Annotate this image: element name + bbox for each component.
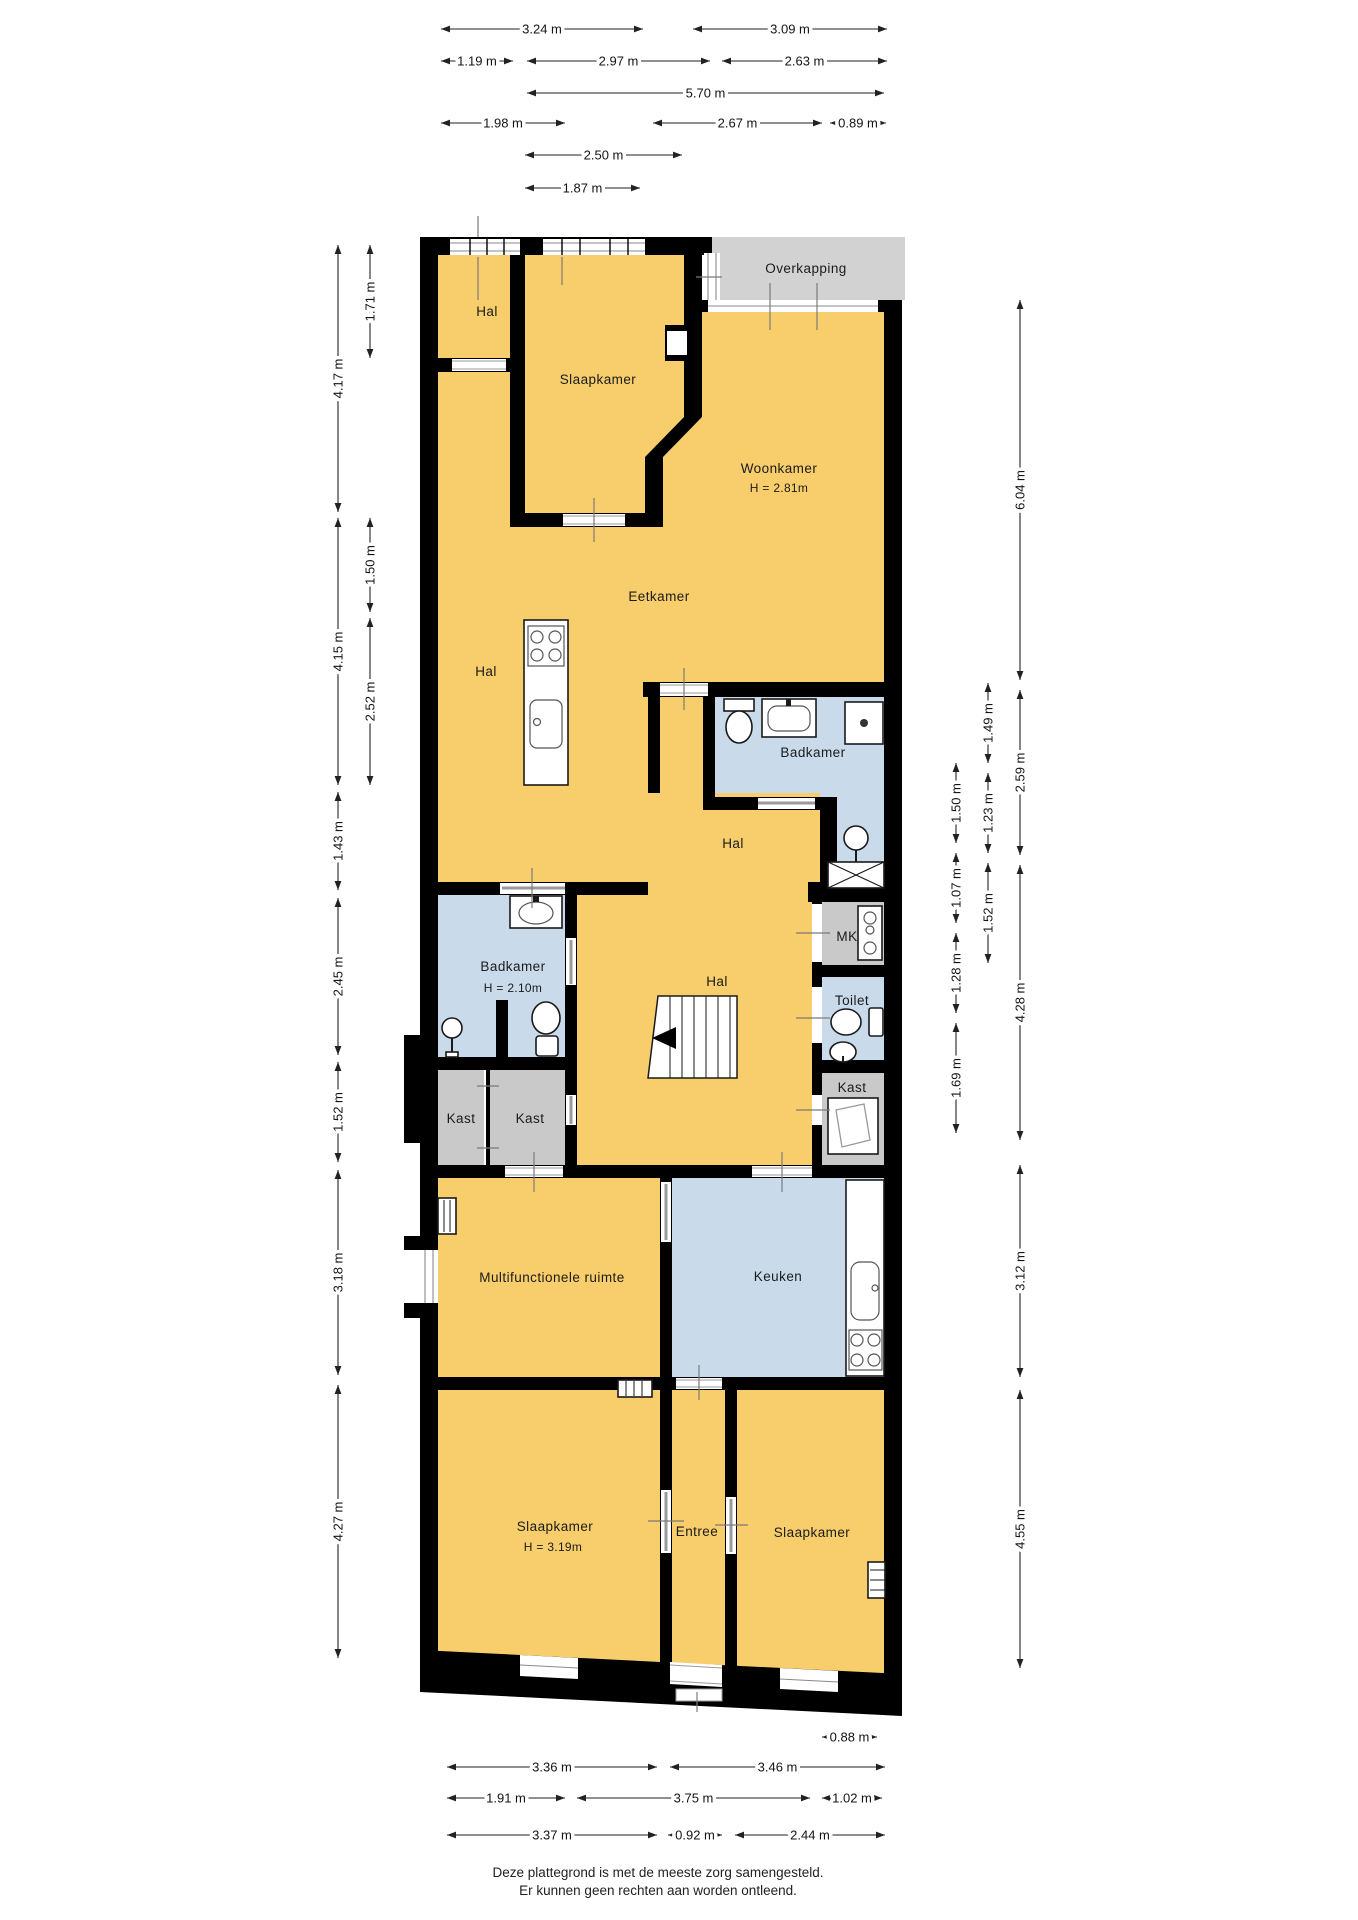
dimension: 1.07 m — [949, 853, 964, 923]
dimension-label: 3.36 m — [532, 1760, 572, 1775]
dimension-label: 3.75 m — [674, 1791, 714, 1806]
label-hal-mid-left: Hal — [475, 664, 497, 679]
footer: Deze plattegrond is met de meeste zorg s… — [493, 1865, 824, 1898]
kitchenette-counter — [524, 620, 568, 785]
dimension: 1.23 m — [981, 773, 996, 853]
radiator-slaapkamer-links — [618, 1380, 652, 1397]
dimension: 2.50 m — [525, 148, 682, 163]
dimension: 2.63 m — [722, 54, 887, 69]
dimension: 2.45 m — [331, 898, 346, 1055]
dimension: 4.27 m — [331, 1385, 346, 1658]
label-eetkamer: Eetkamer — [628, 589, 689, 604]
dimension: 1.28 m — [949, 933, 964, 1013]
dimension-label: 3.18 m — [331, 1253, 346, 1293]
dimension-label: 0.89 m — [838, 116, 878, 131]
dimension: 3.36 m — [447, 1760, 657, 1775]
dimension-label: 3.46 m — [758, 1760, 798, 1775]
dimension-label: 1.28 m — [949, 953, 964, 993]
label-hal-centraal: Hal — [706, 974, 728, 989]
dimension-label: 3.12 m — [1013, 1251, 1028, 1291]
dimension: 3.12 m — [1013, 1165, 1028, 1377]
dimension-label: 0.88 m — [830, 1730, 870, 1745]
dimension: 4.28 m — [1013, 865, 1028, 1140]
dimension: 0.89 m — [830, 116, 886, 131]
dimension: 1.69 m — [949, 1023, 964, 1133]
dimension-label: 1.50 m — [363, 545, 378, 585]
dimension-label: 2.50 m — [584, 148, 624, 163]
badkamer-boven-toilet — [724, 699, 754, 743]
dimension-label: 4.28 m — [1013, 983, 1028, 1023]
dimension: 1.50 m — [363, 518, 378, 612]
dimension: 2.67 m — [653, 116, 822, 131]
footer-line-1: Deze plattegrond is met de meeste zorg s… — [493, 1865, 824, 1880]
mk-boiler — [858, 906, 882, 960]
label-mk: MK — [836, 929, 857, 944]
washing-machine — [828, 862, 884, 888]
dimension-label: 4.17 m — [331, 359, 346, 399]
label-overkapping: Overkapping — [765, 261, 847, 276]
dimension: 3.37 m — [447, 1828, 657, 1843]
dimension-label: 1.52 m — [331, 1092, 346, 1132]
dimension: 1.19 m — [441, 54, 513, 69]
radiator-multifunctionele — [438, 1198, 456, 1234]
label-kast-rechts: Kast — [838, 1080, 867, 1095]
dimension: 3.24 m — [441, 22, 643, 37]
dimension-label: 3.37 m — [532, 1828, 572, 1843]
dimension: 3.46 m — [670, 1760, 885, 1775]
dimension: 1.49 m — [981, 683, 996, 763]
label-kast-links: Kast — [447, 1111, 476, 1126]
dimension-label: 1.71 m — [363, 282, 378, 322]
room-hal-top-left — [438, 255, 510, 358]
dimension-label: 3.24 m — [522, 22, 562, 37]
label-woonkamer-height: H = 2.81m — [750, 481, 808, 495]
label-hal-boven: Hal — [722, 836, 744, 851]
dimension-label: 2.63 m — [785, 54, 825, 69]
dimension-label: 2.45 m — [331, 957, 346, 997]
dimension: 1.71 m — [363, 245, 378, 358]
badkamer-boven-sink — [762, 699, 816, 737]
dimension: 5.70 m — [527, 86, 884, 101]
dimension: 1.02 m — [822, 1791, 882, 1806]
dimension: 2.52 m — [363, 618, 378, 785]
dimension-label: 1.43 m — [331, 821, 346, 861]
dimension-label: 1.98 m — [483, 116, 523, 131]
floorplan-page: Hal Slaapkamer Overkapping Woonkamer H =… — [0, 0, 1358, 1920]
dimension-label: 2.67 m — [718, 116, 758, 131]
dimension: 2.97 m — [527, 54, 710, 69]
dimension-label: 1.69 m — [949, 1058, 964, 1098]
dimension: 1.52 m — [331, 1062, 346, 1162]
label-toilet: Toilet — [835, 993, 869, 1008]
radiator-slaapkamer-rechts — [868, 1562, 885, 1598]
dimension-label: 1.49 m — [981, 703, 996, 743]
dimension-label: 1.19 m — [457, 54, 497, 69]
dimension-label: 5.70 m — [686, 86, 726, 101]
room-hal-corridor — [660, 697, 703, 797]
dimension: 1.52 m — [981, 863, 996, 963]
dimension: 3.18 m — [331, 1170, 346, 1375]
dimension: 1.98 m — [441, 116, 565, 131]
label-multifunctionele-ruimte: Multifunctionele ruimte — [479, 1270, 624, 1285]
dimension: 0.88 m — [822, 1730, 877, 1745]
dimension-label: 1.52 m — [981, 893, 996, 933]
badkamer-links-sink — [510, 896, 562, 928]
label-badkamer-boven: Badkamer — [780, 745, 845, 760]
dimension: 4.55 m — [1013, 1390, 1028, 1668]
label-badkamer-links-height: H = 2.10m — [484, 981, 542, 995]
dimension: 2.59 m — [1013, 690, 1028, 855]
dimension-label: 4.55 m — [1013, 1509, 1028, 1549]
label-entree: Entree — [676, 1524, 718, 1539]
dimension: 4.15 m — [331, 518, 346, 785]
dimension-label: 2.44 m — [790, 1828, 830, 1843]
dimension: 1.87 m — [525, 181, 640, 196]
dimension-label: 1.91 m — [486, 1791, 526, 1806]
label-woonkamer: Woonkamer — [741, 461, 818, 476]
label-slaapkamer-linksonder: Slaapkamer — [517, 1519, 594, 1534]
kast-water-heater — [828, 1098, 878, 1154]
dimension: 2.44 m — [735, 1828, 885, 1843]
dimension: 1.50 m — [949, 763, 964, 843]
dimension-label: 4.15 m — [331, 632, 346, 672]
room-eetkamer-left-strip — [438, 372, 510, 882]
label-kast-midden: Kast — [516, 1111, 545, 1126]
dimension-label: 2.52 m — [363, 682, 378, 722]
label-keuken: Keuken — [754, 1269, 803, 1284]
dimension: 4.17 m — [331, 245, 346, 512]
dimension: 3.09 m — [693, 22, 887, 37]
keuken-counter — [846, 1180, 884, 1376]
label-slaapkamer-linksonder-height: H = 3.19m — [524, 1540, 582, 1554]
dimension: 0.92 m — [668, 1828, 722, 1843]
badkamer-boven-shower — [845, 702, 883, 744]
dimension-label: 1.07 m — [949, 868, 964, 908]
dimension-label: 6.04 m — [1013, 470, 1028, 510]
interior-window — [666, 326, 688, 360]
badkamer-links-toilet — [532, 1002, 560, 1056]
dimension: 6.04 m — [1013, 300, 1028, 680]
dimension-label: 1.87 m — [563, 181, 603, 196]
dimension-label: 1.50 m — [949, 783, 964, 823]
label-slaapkamer-top: Slaapkamer — [560, 372, 637, 387]
dimension: 3.75 m — [577, 1791, 810, 1806]
room-eetkamer-sliver — [648, 527, 663, 682]
label-badkamer-links: Badkamer — [480, 959, 545, 974]
footer-line-2: Er kunnen geen rechten aan worden ontlee… — [519, 1883, 797, 1898]
dimension-label: 4.27 m — [331, 1502, 346, 1542]
dimension-label: 1.02 m — [832, 1791, 872, 1806]
dimension-label: 2.59 m — [1013, 753, 1028, 793]
dimension-label: 0.92 m — [675, 1828, 715, 1843]
dimension-label: 2.97 m — [599, 54, 639, 69]
label-slaapkamer-rechtsonder: Slaapkamer — [774, 1525, 851, 1540]
floorplan-canvas: Hal Slaapkamer Overkapping Woonkamer H =… — [0, 0, 1358, 1920]
dimension: 1.43 m — [331, 792, 346, 890]
dimension: 1.91 m — [447, 1791, 565, 1806]
label-hal-top-left: Hal — [476, 304, 498, 319]
dimension-label: 1.23 m — [981, 793, 996, 833]
stairs — [648, 996, 737, 1078]
dimension-label: 3.09 m — [770, 22, 810, 37]
